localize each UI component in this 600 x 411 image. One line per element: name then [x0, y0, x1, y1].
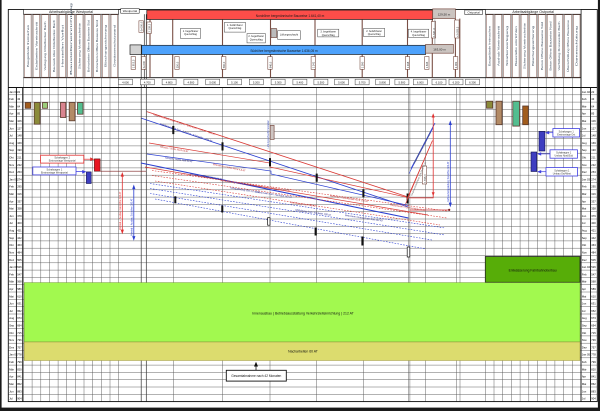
svg-text:841: 841	[591, 375, 596, 379]
svg-text:148: 148	[591, 134, 596, 138]
svg-text:250,0: 250,0	[175, 61, 179, 68]
svg-text:22: 22	[591, 90, 594, 94]
svg-text:883: 883	[17, 389, 22, 393]
svg-text:778: 778	[17, 353, 22, 357]
svg-text:129,50 m: 129,50 m	[438, 13, 451, 17]
svg-text:Jul: Jul	[582, 134, 586, 138]
svg-text:694: 694	[591, 324, 596, 328]
svg-text:5.500: 5.500	[318, 81, 325, 85]
svg-text:Dez: Dez	[9, 345, 14, 349]
svg-text:Beton Offene Bauweise Nord: Beton Offene Bauweise Nord	[549, 21, 553, 71]
svg-text:820: 820	[17, 367, 22, 371]
svg-text:6.200: 6.200	[453, 81, 460, 85]
svg-text:Sep: Sep	[9, 148, 14, 152]
svg-text:862: 862	[591, 382, 596, 386]
svg-text:484: 484	[591, 251, 596, 255]
svg-text:610: 610	[17, 294, 22, 298]
svg-text:+2.083,5: +2.083,5	[455, 26, 459, 37]
svg-text:Feb: Feb	[582, 272, 587, 276]
svg-text:Aug: Aug	[582, 141, 587, 145]
svg-text:Innenausbau ( Betriebsausstatt: Innenausbau ( Betriebsausstattung Verkeh…	[252, 312, 353, 316]
svg-text:337: 337	[591, 199, 596, 203]
svg-text:Apr: Apr	[582, 375, 586, 379]
svg-text:Jul: Jul	[9, 134, 13, 138]
svg-text:400: 400	[591, 221, 596, 225]
svg-text:Aug: Aug	[9, 229, 14, 233]
svg-text:694: 694	[17, 324, 22, 328]
svg-text:Mai: Mai	[582, 207, 587, 211]
svg-text:652: 652	[591, 309, 596, 313]
svg-text:526: 526	[591, 265, 596, 269]
svg-text:757: 757	[591, 345, 596, 349]
svg-text:5.400: 5.400	[297, 81, 304, 85]
svg-text:Jan 03: Jan 03	[582, 177, 591, 181]
svg-text:841: 841	[17, 375, 22, 379]
svg-text:484: 484	[17, 251, 22, 255]
svg-text:715: 715	[591, 331, 596, 335]
svg-text:0+000,0: 0+000,0	[140, 21, 144, 31]
svg-text:Feb: Feb	[9, 360, 14, 364]
svg-text:Querschlag: Querschlag	[368, 33, 381, 36]
svg-text:Mär: Mär	[9, 367, 14, 371]
svg-text:Böschungssicherung: Böschungssicherung	[104, 24, 108, 67]
svg-text:590,0: 590,0	[222, 61, 226, 68]
svg-text:673: 673	[591, 316, 596, 320]
svg-text:Dez: Dez	[582, 258, 587, 262]
svg-text:1.636,0: 1.636,0	[423, 174, 427, 183]
svg-text:Westportal: Westportal	[123, 9, 138, 13]
svg-text:589: 589	[17, 287, 22, 291]
svg-text:Apr: Apr	[582, 287, 586, 291]
svg-text:Jul: Jul	[582, 397, 586, 401]
svg-text:Verlegung Rötelbecker Bach: Verlegung Rötelbecker Bach	[43, 21, 47, 71]
svg-text:Sicherung Voreinschnitte: Sicherung Voreinschnitte	[78, 22, 82, 69]
svg-text:Nov: Nov	[9, 251, 14, 255]
svg-text:Arbeitsablgänge Ostportal: Arbeitsablgänge Ostportal	[512, 10, 554, 14]
svg-text:Nacharbeiten 60 AT: Nacharbeiten 60 AT	[288, 350, 318, 354]
svg-text:Sep: Sep	[9, 324, 14, 328]
svg-text:190: 190	[591, 148, 596, 152]
svg-text:316: 316	[17, 192, 22, 196]
svg-text:85: 85	[17, 112, 20, 116]
svg-text:379: 379	[17, 214, 22, 218]
svg-text:Jun: Jun	[582, 389, 587, 393]
svg-text:232: 232	[591, 163, 596, 167]
svg-text:421: 421	[17, 229, 22, 233]
svg-text:883: 883	[591, 389, 596, 393]
svg-text:Mär: Mär	[582, 192, 587, 196]
svg-text:Sep: Sep	[582, 148, 587, 152]
svg-text:274: 274	[17, 177, 22, 181]
svg-text:232: 232	[17, 163, 22, 167]
svg-text:43: 43	[17, 97, 20, 101]
svg-text:Jun: Jun	[582, 126, 587, 130]
svg-text:463: 463	[591, 243, 596, 247]
svg-text:631: 631	[17, 302, 22, 306]
svg-text:Mär: Mär	[582, 367, 587, 371]
svg-text:Querschlag: Querschlag	[322, 34, 335, 37]
svg-text:1.641,4: 1.641,4	[432, 28, 436, 37]
svg-text:Feb: Feb	[582, 97, 587, 101]
svg-text:568: 568	[17, 280, 22, 284]
svg-text:Okt: Okt	[582, 331, 586, 335]
svg-text:4.800: 4.800	[166, 81, 173, 85]
svg-text:1.813,5: 1.813,5	[132, 59, 136, 68]
svg-text:Querschlag: Querschlag	[229, 27, 242, 30]
svg-text:64: 64	[17, 104, 20, 108]
svg-text:589: 589	[591, 287, 596, 291]
svg-text:Feb: Feb	[9, 272, 14, 276]
svg-text:Mai: Mai	[9, 294, 14, 298]
svg-text:Straßenverlegung: Straßenverlegung	[505, 25, 509, 66]
svg-text:Feb: Feb	[582, 360, 587, 364]
svg-text:Mär: Mär	[582, 104, 587, 108]
svg-text:Umbau Ost/West: Umbau Ost/West	[553, 173, 571, 176]
svg-text:163,00 m: 163,00 m	[433, 48, 446, 52]
svg-text:106: 106	[17, 119, 22, 123]
svg-text:Mär: Mär	[9, 192, 14, 196]
svg-text:Gesamtabnahme nach 42 Monaten: Gesamtabnahme nach 42 Monaten	[231, 374, 281, 378]
svg-text:379: 379	[591, 214, 596, 218]
svg-text:Feb: Feb	[582, 185, 587, 189]
svg-text:4.600: 4.600	[122, 81, 129, 85]
svg-text:Ostportal: Ostportal	[468, 11, 481, 15]
svg-text:673: 673	[17, 316, 22, 320]
svg-text:Aushub Voreinschnitt: Aushub Voreinschnitt	[496, 26, 500, 66]
svg-text:Nov: Nov	[582, 338, 587, 342]
svg-text:526: 526	[17, 265, 22, 269]
svg-text:940,0: 940,0	[268, 61, 272, 68]
svg-text:547: 547	[591, 272, 596, 276]
svg-text:Dez: Dez	[9, 170, 14, 174]
svg-text:Vortrieb + Ausbau Südröhre 300: Vortrieb + Ausbau Südröhre 300 AT	[131, 198, 134, 236]
svg-text:Jul: Jul	[9, 221, 13, 225]
svg-text:Mär: Mär	[9, 280, 14, 284]
svg-text:169: 169	[591, 141, 596, 145]
svg-text:316: 316	[591, 192, 596, 196]
svg-text:568: 568	[591, 280, 596, 284]
svg-text:5.000: 5.000	[209, 81, 216, 85]
svg-text:85: 85	[591, 112, 594, 116]
svg-text:Okt: Okt	[9, 243, 13, 247]
svg-text:Dez: Dez	[582, 345, 587, 349]
svg-text:1.636: 1.636	[425, 61, 429, 68]
svg-text:169: 169	[17, 141, 22, 145]
svg-text:5.600: 5.600	[338, 81, 345, 85]
svg-text:400: 400	[17, 221, 22, 225]
svg-text:Lüftungsschacht herstellen: Lüftungsschacht herstellen	[267, 119, 270, 148]
svg-text:778: 778	[591, 353, 596, 357]
svg-text:253: 253	[591, 170, 596, 174]
svg-text:505: 505	[591, 258, 596, 262]
svg-text:Sep: Sep	[582, 236, 587, 240]
svg-text:Nordröhre bergmännische Bauwei: Nordröhre bergmännische Bauweise 1.641,4…	[256, 14, 325, 18]
svg-text:127: 127	[591, 126, 596, 130]
svg-text:862: 862	[17, 382, 22, 386]
svg-text:Überschüttung Offene Bauweise: Überschüttung Offene Bauweise	[566, 19, 570, 72]
svg-text:5.200: 5.200	[253, 81, 260, 85]
svg-text:Mär: Mär	[9, 104, 14, 108]
svg-text:Jul: Jul	[582, 221, 586, 225]
svg-text:Erdarbeiten Voreinschnitt: Erdarbeiten Voreinschnitt	[35, 22, 39, 70]
svg-text:Querschlag: Querschlag	[412, 34, 425, 37]
svg-text:Beton Offene Bauweise Süd: Beton Offene Bauweise Süd	[540, 21, 544, 70]
svg-text:820: 820	[591, 367, 596, 371]
svg-text:Mai: Mai	[9, 119, 14, 123]
svg-text:463: 463	[17, 243, 22, 247]
svg-text:274: 274	[591, 177, 596, 181]
svg-text:5.300: 5.300	[275, 81, 282, 85]
svg-text:Bauwerk über Rötelbecker Bach: Bauwerk über Rötelbecker Bach	[52, 19, 56, 72]
svg-text:Mai: Mai	[9, 207, 14, 211]
svg-text:Entwässerung Fahrbahnoberbau: Entwässerung Fahrbahnoberbau	[509, 269, 557, 273]
svg-text:1.938: 1.938	[406, 61, 410, 68]
svg-text:Mai: Mai	[9, 382, 14, 386]
svg-text:253: 253	[17, 170, 22, 174]
svg-text:5.100: 5.100	[231, 81, 238, 85]
svg-text:2.083: 2.083	[454, 61, 458, 68]
svg-text:904: 904	[17, 397, 22, 401]
svg-text:610: 610	[591, 294, 596, 298]
svg-text:Nov: Nov	[582, 251, 587, 255]
svg-text:Jul: Jul	[9, 309, 13, 313]
svg-text:106: 106	[591, 119, 596, 123]
svg-text:Vortrieb + Ausbau Nordröhre 34: Vortrieb + Ausbau Nordröhre 340 AT	[119, 191, 122, 230]
svg-text:5.800: 5.800	[379, 81, 386, 85]
svg-text:Baugelände freimachen: Baugelände freimachen	[488, 25, 492, 66]
svg-text:Jun: Jun	[9, 214, 14, 218]
svg-text:Jul: Jul	[582, 309, 586, 313]
svg-text:442: 442	[17, 236, 22, 240]
svg-text:Sep: Sep	[9, 236, 14, 240]
svg-text:799: 799	[17, 360, 22, 364]
svg-text:64: 64	[591, 104, 594, 108]
svg-text:Jun: Jun	[9, 389, 14, 393]
svg-text:211: 211	[17, 156, 22, 160]
svg-text:295: 295	[591, 185, 596, 189]
svg-text:421: 421	[591, 229, 596, 233]
svg-text:0+000: 0+000	[142, 60, 146, 68]
svg-text:757: 757	[17, 345, 22, 349]
svg-text:Dez: Dez	[9, 258, 14, 262]
svg-text:Aug: Aug	[582, 316, 587, 320]
svg-text:Apr: Apr	[9, 112, 13, 116]
svg-text:715: 715	[17, 331, 22, 335]
svg-text:Jan 02: Jan 02	[582, 90, 591, 94]
svg-text:Sep: Sep	[582, 324, 587, 328]
svg-text:Okt: Okt	[9, 156, 13, 160]
svg-text:442: 442	[591, 236, 596, 240]
svg-text:Mai: Mai	[582, 294, 587, 298]
svg-text:Jun: Jun	[9, 126, 14, 130]
svg-text:Mai: Mai	[582, 119, 587, 123]
svg-text:Baustelleneinrichtung: Baustelleneinrichtung	[69, 2, 73, 75]
svg-text:Apr: Apr	[9, 199, 13, 203]
svg-text:Okt: Okt	[582, 243, 586, 247]
svg-text:Nov: Nov	[9, 163, 14, 167]
svg-text:Südröhre bergmännische Bauweis: Südröhre bergmännische Bauweise 1.636,05…	[250, 49, 318, 53]
svg-text:190: 190	[17, 148, 22, 152]
svg-text:652: 652	[17, 309, 22, 313]
svg-text:Aug: Aug	[9, 141, 14, 145]
svg-text:6.000: 6.000	[417, 81, 424, 85]
svg-text:Jul: Jul	[9, 397, 13, 401]
svg-text:736: 736	[17, 338, 22, 342]
svg-text:Baugelände freimachen: Baugelände freimachen	[26, 24, 30, 67]
svg-text:Rohbaufertigstellung Südröhre: Rohbaufertigstellung Südröhre 323 AT	[447, 161, 450, 202]
svg-text:Apr: Apr	[9, 375, 13, 379]
svg-text:736: 736	[591, 338, 596, 342]
svg-text:1.241: 1.241	[312, 61, 316, 68]
svg-text:43: 43	[591, 97, 594, 101]
svg-text:505: 505	[17, 258, 22, 262]
svg-text:Erstmontage Westportal: Erstmontage Westportal	[49, 160, 76, 163]
svg-text:Mär: Mär	[582, 280, 587, 284]
svg-text:Jan 05: Jan 05	[582, 353, 591, 357]
svg-text:5.900: 5.900	[399, 81, 406, 85]
svg-text:127: 127	[17, 126, 22, 130]
svg-text:Apr: Apr	[9, 287, 13, 291]
svg-text:Aug: Aug	[582, 229, 587, 233]
svg-text:Okt: Okt	[9, 331, 13, 335]
svg-text:904: 904	[591, 397, 596, 401]
svg-text:Nov: Nov	[9, 338, 14, 342]
svg-text:4.700: 4.700	[144, 81, 151, 85]
svg-text:5.700: 5.700	[359, 81, 366, 85]
svg-text:Aug: Aug	[9, 316, 14, 320]
svg-text:Jun: Jun	[582, 214, 587, 218]
svg-text:Feb: Feb	[9, 185, 14, 189]
svg-text:Verfüllung Rossweiler Bach: Verfüllung Rossweiler Bach	[557, 21, 561, 71]
svg-text:Feb: Feb	[9, 97, 14, 101]
svg-text:Jun: Jun	[582, 302, 587, 306]
svg-text:799: 799	[591, 360, 596, 364]
svg-text:358: 358	[591, 207, 596, 211]
svg-text:Gewässerschutzwand: Gewässerschutzwand	[112, 24, 116, 67]
svg-text:Nov: Nov	[582, 163, 587, 167]
svg-text:547: 547	[17, 272, 22, 276]
svg-text:Apr: Apr	[582, 112, 586, 116]
svg-text:Erstmontage Westportal: Erstmontage Westportal	[41, 172, 68, 175]
svg-text:631: 631	[591, 302, 596, 306]
svg-text:Mai: Mai	[582, 382, 587, 386]
svg-text:295: 295	[17, 185, 22, 189]
svg-text:Umbau Nord/Süd: Umbau Nord/Süd	[554, 155, 573, 158]
svg-text:Jan 04: Jan 04	[582, 265, 591, 269]
svg-text:337: 337	[17, 199, 22, 203]
svg-text:Querschlag: Querschlag	[184, 33, 197, 36]
svg-text:22: 22	[17, 90, 20, 94]
svg-text:358: 358	[17, 207, 22, 211]
svg-text:Lüftungsschacht: Lüftungsschacht	[280, 34, 299, 37]
svg-text:4.900: 4.900	[188, 81, 195, 85]
svg-text:Sicherung Voreinschnitte: Sicherung Voreinschnitte	[523, 22, 527, 69]
svg-text:2.158,5: 2.158,5	[148, 23, 152, 32]
svg-text:Baustelle einrichten: Baustelle einrichten	[514, 25, 518, 66]
svg-text:6.300: 6.300	[469, 81, 476, 85]
svg-text:211: 211	[591, 156, 596, 160]
svg-text:Okt: Okt	[582, 156, 586, 160]
svg-text:Herstellen Vorflut: Herstellen Vorflut	[60, 25, 64, 67]
svg-text:Querschlag: Querschlag	[250, 38, 263, 41]
svg-text:Jun: Jun	[9, 302, 14, 306]
svg-text:Bohrarbeiten Offene Bauweise N: Bohrarbeiten Offene Bauweise Nord	[95, 19, 99, 72]
svg-text:1.590: 1.590	[361, 61, 365, 68]
svg-text:Dammschüttung: Dammschüttung	[575, 25, 579, 66]
svg-text:Dez: Dez	[582, 170, 587, 174]
svg-text:148: 148	[17, 134, 22, 138]
svg-text:Bohrarbeiten Offene Bauweise S: Bohrarbeiten Offene Bauweise Süd	[86, 19, 90, 72]
svg-text:Böschungssicherung: Böschungssicherung	[531, 25, 535, 66]
svg-text:Apr: Apr	[582, 199, 586, 203]
svg-text:Erstmontage Ost: Erstmontage Ost	[557, 134, 575, 137]
svg-text:6.100: 6.100	[436, 81, 443, 85]
